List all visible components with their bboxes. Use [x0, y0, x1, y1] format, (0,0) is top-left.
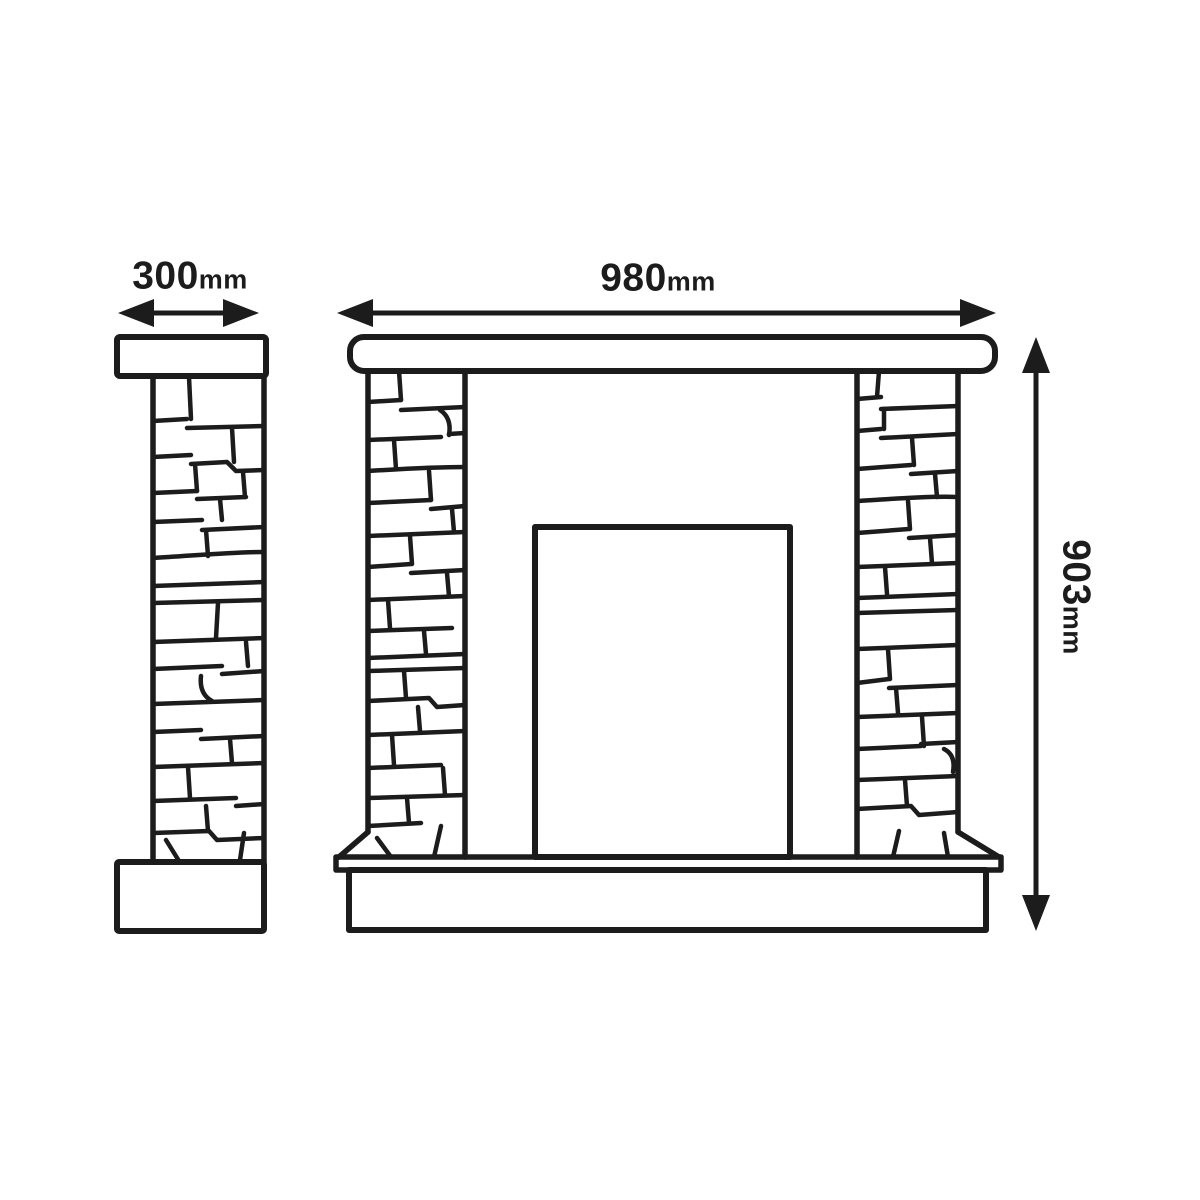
side-view-cap	[117, 337, 266, 376]
dimension-value: 980	[600, 257, 667, 300]
arrow-right-icon	[960, 299, 996, 327]
arrow-right-icon	[223, 299, 259, 327]
stone-pattern-side	[153, 377, 264, 861]
height-dimension-arrow	[1022, 337, 1050, 931]
fireplace-dimension-diagram	[0, 0, 1200, 1200]
side-width-dimension-arrow	[118, 299, 259, 327]
front-width-dimension-arrow	[337, 299, 996, 327]
arrow-left-icon	[337, 299, 373, 327]
dimension-value: 903	[1055, 539, 1098, 606]
stone-pattern-right-pillar	[857, 371, 958, 857]
dimension-label-side-depth: 300mm	[132, 257, 248, 296]
side-view	[117, 337, 266, 931]
dimension-unit: mm	[1058, 606, 1088, 655]
plinth	[349, 870, 986, 930]
dimension-unit: mm	[667, 267, 716, 297]
side-view-column	[153, 376, 264, 862]
arrow-left-icon	[118, 299, 154, 327]
dimension-unit: mm	[199, 265, 248, 295]
mantel-shelf	[350, 337, 995, 371]
dimension-label-front-width: 980mm	[600, 259, 716, 298]
dimension-value: 300	[132, 255, 199, 298]
firebox-opening	[535, 527, 790, 857]
left-pillar	[368, 371, 465, 857]
side-view-base	[117, 862, 264, 931]
diagram-canvas: 300mm 980mm 903mm	[0, 0, 1200, 1200]
arrow-down-icon	[1022, 895, 1050, 931]
arrow-up-icon	[1022, 337, 1050, 373]
front-view	[336, 337, 1001, 930]
stone-pattern-left-pillar	[368, 371, 465, 857]
dimension-label-height: 903mm	[1057, 539, 1096, 655]
